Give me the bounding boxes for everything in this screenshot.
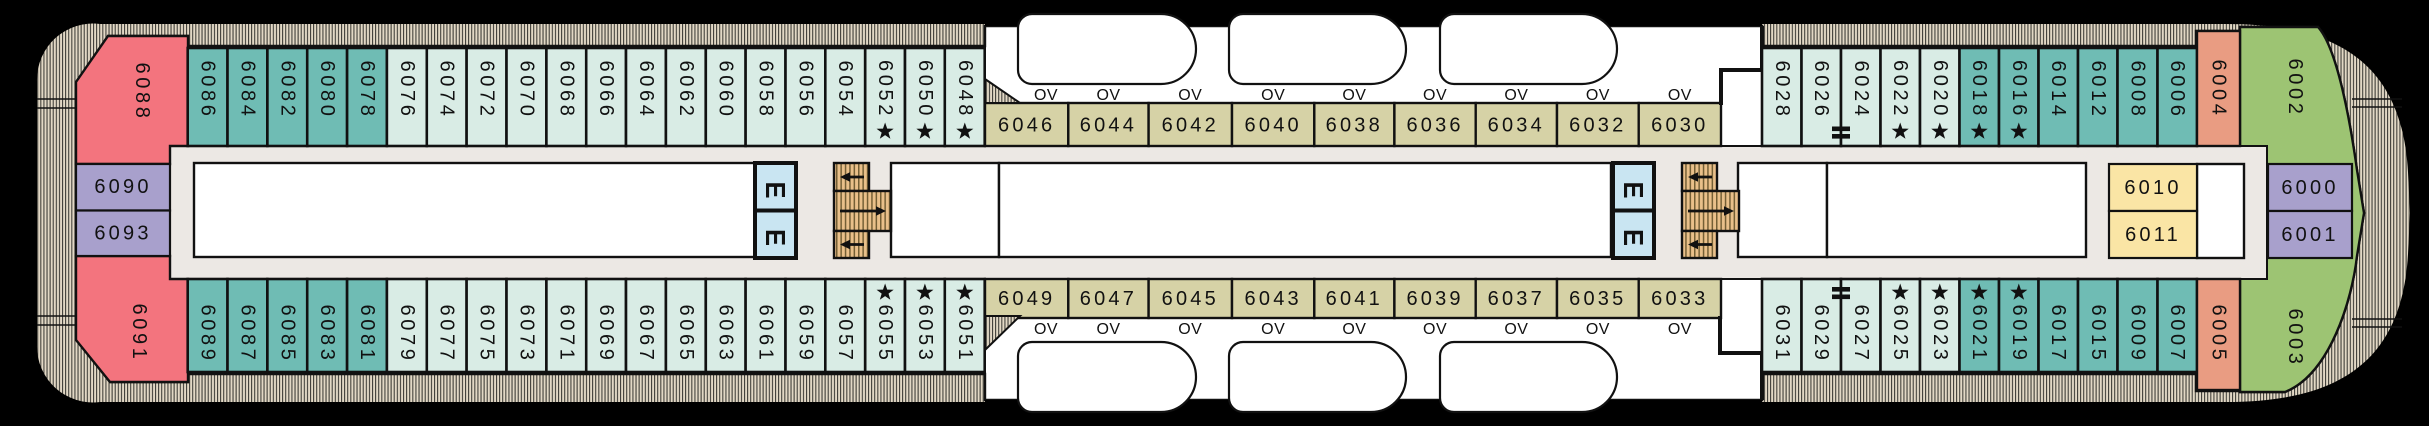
- svg-text:6010: 6010: [2124, 177, 2181, 199]
- svg-text:6058: 6058: [755, 61, 777, 120]
- svg-text:6021: 6021: [1968, 305, 1990, 364]
- svg-text:OV: OV: [1504, 321, 1528, 338]
- svg-text:6065: 6065: [675, 305, 697, 364]
- svg-text:6012: 6012: [2087, 61, 2109, 120]
- svg-text:6002: 6002: [2284, 59, 2306, 118]
- svg-text:6087: 6087: [237, 305, 259, 364]
- svg-text:6084: 6084: [237, 61, 259, 120]
- svg-text:6023: 6023: [1929, 305, 1951, 364]
- svg-text:OV: OV: [1034, 87, 1058, 104]
- svg-text:6067: 6067: [635, 305, 657, 364]
- svg-text:6024: 6024: [1850, 61, 1872, 120]
- svg-text:6039: 6039: [1406, 288, 1463, 310]
- svg-text:6052: 6052: [874, 60, 896, 119]
- svg-text:6009: 6009: [2127, 305, 2149, 364]
- svg-text:6000: 6000: [2281, 177, 2338, 199]
- svg-text:6006: 6006: [2166, 61, 2188, 120]
- svg-text:6045: 6045: [1162, 288, 1219, 310]
- svg-text:6041: 6041: [1326, 288, 1383, 310]
- svg-text:6020: 6020: [1929, 60, 1951, 119]
- svg-text:6074: 6074: [436, 61, 458, 120]
- svg-text:6082: 6082: [276, 61, 298, 120]
- svg-text:6061: 6061: [755, 305, 777, 364]
- svg-text:6007: 6007: [2166, 305, 2188, 364]
- svg-text:6080: 6080: [316, 61, 338, 120]
- svg-text:6064: 6064: [635, 61, 657, 120]
- svg-text:OV: OV: [1668, 321, 1692, 338]
- svg-text:6057: 6057: [834, 305, 856, 364]
- svg-text:6028: 6028: [1771, 61, 1793, 120]
- svg-text:OV: OV: [1261, 87, 1285, 104]
- svg-text:6063: 6063: [715, 305, 737, 364]
- svg-text:6059: 6059: [794, 305, 816, 364]
- svg-text:6046: 6046: [998, 115, 1055, 137]
- svg-text:6085: 6085: [276, 305, 298, 364]
- svg-text:E: E: [760, 182, 791, 199]
- svg-text:6056: 6056: [794, 61, 816, 120]
- svg-text:6077: 6077: [436, 305, 458, 364]
- svg-text:6042: 6042: [1162, 115, 1219, 137]
- svg-text:6091: 6091: [128, 304, 150, 363]
- svg-text:OV: OV: [1342, 321, 1366, 338]
- svg-text:6093: 6093: [94, 223, 151, 245]
- svg-text:6081: 6081: [356, 305, 378, 364]
- svg-text:OV: OV: [1586, 87, 1610, 104]
- svg-text:6031: 6031: [1771, 305, 1793, 364]
- svg-text:6025: 6025: [1889, 305, 1911, 364]
- svg-text:E: E: [1618, 229, 1649, 246]
- svg-text:6071: 6071: [555, 305, 577, 364]
- svg-text:6032: 6032: [1569, 115, 1626, 137]
- svg-text:6060: 6060: [715, 61, 737, 120]
- svg-text:6026: 6026: [1810, 61, 1832, 120]
- svg-text:6015: 6015: [2087, 305, 2109, 364]
- svg-text:6050: 6050: [914, 60, 936, 119]
- svg-text:6055: 6055: [874, 305, 896, 364]
- svg-text:6027: 6027: [1850, 305, 1872, 364]
- svg-text:6076: 6076: [396, 61, 418, 120]
- svg-text:6004: 6004: [2208, 60, 2230, 119]
- svg-text:6069: 6069: [595, 305, 617, 364]
- svg-text:6014: 6014: [2047, 61, 2069, 120]
- svg-text:6047: 6047: [1080, 288, 1137, 310]
- svg-text:6049: 6049: [998, 288, 1055, 310]
- svg-text:OV: OV: [1423, 87, 1447, 104]
- svg-text:6083: 6083: [316, 305, 338, 364]
- svg-text:6003: 6003: [2284, 309, 2306, 368]
- svg-text:6037: 6037: [1488, 288, 1545, 310]
- svg-text:OV: OV: [1178, 87, 1202, 104]
- svg-text:6038: 6038: [1326, 115, 1383, 137]
- svg-text:OV: OV: [1342, 87, 1366, 104]
- svg-text:6068: 6068: [555, 61, 577, 120]
- svg-text:6040: 6040: [1245, 115, 1302, 137]
- svg-text:6079: 6079: [396, 305, 418, 364]
- svg-text:6033: 6033: [1651, 288, 1708, 310]
- svg-text:OV: OV: [1096, 321, 1120, 338]
- svg-text:6016: 6016: [2008, 60, 2030, 119]
- svg-text:6086: 6086: [197, 61, 219, 120]
- svg-text:6029: 6029: [1810, 305, 1832, 364]
- svg-text:6075: 6075: [476, 305, 498, 364]
- svg-text:6054: 6054: [834, 61, 856, 120]
- svg-text:6044: 6044: [1080, 115, 1137, 137]
- svg-text:6089: 6089: [197, 305, 219, 364]
- svg-text:6019: 6019: [2008, 305, 2030, 364]
- svg-text:OV: OV: [1261, 321, 1285, 338]
- svg-text:6001: 6001: [2281, 224, 2338, 246]
- svg-text:6030: 6030: [1651, 115, 1708, 137]
- svg-text:6066: 6066: [595, 61, 617, 120]
- svg-text:6034: 6034: [1488, 115, 1545, 137]
- svg-text:6073: 6073: [515, 305, 537, 364]
- svg-text:6011: 6011: [2125, 224, 2181, 246]
- svg-text:OV: OV: [1178, 321, 1202, 338]
- svg-text:6062: 6062: [675, 61, 697, 120]
- svg-text:OV: OV: [1668, 87, 1692, 104]
- svg-text:6022: 6022: [1889, 60, 1911, 119]
- svg-text:6048: 6048: [954, 60, 976, 119]
- svg-text:6078: 6078: [356, 61, 378, 120]
- svg-text:6017: 6017: [2047, 305, 2069, 364]
- svg-text:6036: 6036: [1406, 115, 1463, 137]
- svg-text:6088: 6088: [131, 63, 153, 122]
- svg-text:E: E: [1618, 182, 1649, 199]
- svg-text:6008: 6008: [2127, 61, 2149, 120]
- svg-text:6072: 6072: [476, 61, 498, 120]
- svg-text:6070: 6070: [515, 61, 537, 120]
- svg-text:6051: 6051: [954, 305, 976, 364]
- svg-text:OV: OV: [1423, 321, 1447, 338]
- svg-text:6018: 6018: [1968, 60, 1990, 119]
- svg-text:OV: OV: [1504, 87, 1528, 104]
- svg-text:E: E: [760, 229, 791, 246]
- svg-text:6053: 6053: [914, 305, 936, 364]
- svg-text:6043: 6043: [1245, 288, 1302, 310]
- svg-text:OV: OV: [1034, 321, 1058, 338]
- svg-text:6005: 6005: [2208, 305, 2230, 364]
- svg-text:6090: 6090: [94, 176, 151, 198]
- svg-text:6035: 6035: [1569, 288, 1626, 310]
- svg-text:OV: OV: [1096, 87, 1120, 104]
- svg-text:OV: OV: [1586, 321, 1610, 338]
